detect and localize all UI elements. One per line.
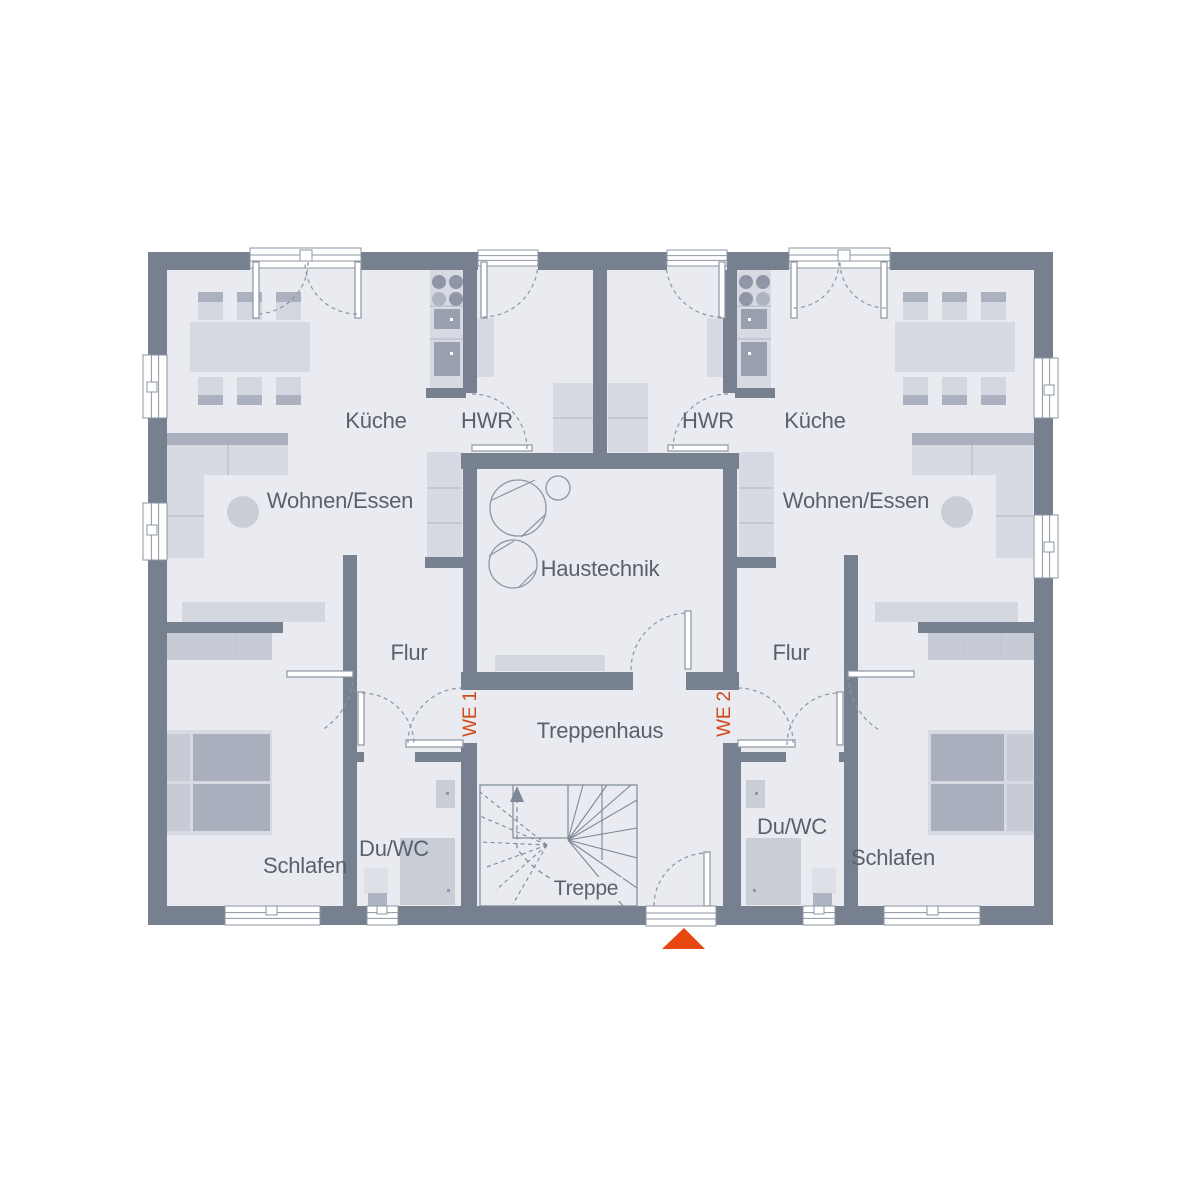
door-swing	[848, 674, 878, 729]
stair-tread	[568, 785, 607, 840]
door-swing	[408, 688, 463, 743]
door-swing	[362, 693, 414, 745]
hob-burner-circle	[432, 292, 446, 306]
door-leaf	[406, 740, 463, 747]
door-leaf	[704, 852, 710, 906]
label-schlafen-right: Schlafen	[851, 845, 935, 871]
window-frame	[646, 906, 716, 926]
window-duwc-right	[803, 906, 835, 925]
door-leaf	[358, 692, 364, 745]
hob-burner-circle	[756, 292, 770, 306]
window-handle	[266, 906, 277, 915]
hob-burner	[739, 275, 753, 289]
label-wohnen-right: Wohnen/Essen	[783, 488, 929, 514]
fixture-dot	[450, 318, 453, 321]
hob-burner-circle	[432, 275, 446, 289]
stair-tread-upper	[484, 845, 547, 868]
window-schlafen-right	[884, 906, 980, 925]
hob-burner-circle	[756, 275, 770, 289]
door-leaf	[837, 692, 843, 745]
label-treppe: Treppe	[550, 877, 623, 901]
door-leaf	[881, 262, 887, 318]
door-leaf	[355, 262, 361, 318]
window-right-upper	[1034, 358, 1058, 418]
hob-burner	[432, 292, 446, 306]
door-leaf	[481, 262, 487, 318]
plan-symbol-layer	[0, 0, 1200, 1200]
label-kueche-left: Küche	[345, 408, 406, 434]
boiler-tank-large-chord	[521, 514, 546, 537]
expansion-vessel	[546, 476, 570, 500]
window-duwc-left	[367, 906, 398, 925]
door-swing	[738, 688, 793, 743]
label-hwr-right: HWR	[682, 408, 734, 434]
label-haustechnik: Haustechnik	[541, 556, 660, 582]
boiler-tank-large-chord	[492, 480, 535, 500]
entrance-marker	[662, 928, 705, 949]
hob-burner	[449, 292, 463, 306]
window-handle	[147, 525, 157, 535]
door-swing	[654, 853, 707, 906]
window-handle	[377, 906, 387, 914]
label-kueche-right: Küche	[784, 408, 845, 434]
door-swing	[787, 693, 839, 745]
boiler-tank-large	[490, 480, 546, 537]
fixture-dot	[447, 889, 450, 892]
entrance-threshold	[646, 906, 716, 926]
coffee-table-right-circle	[941, 496, 973, 528]
window-schlafen-left	[225, 906, 320, 925]
hob-burner	[432, 275, 446, 289]
door-swing	[256, 262, 308, 314]
coffee-table-left	[227, 496, 259, 528]
window-handle	[147, 382, 157, 392]
window-handle	[814, 906, 824, 914]
hob-burner-circle	[739, 275, 753, 289]
door-leaf	[287, 671, 353, 677]
door-swing	[305, 262, 357, 314]
fixture-dot	[755, 792, 758, 795]
window-left-lower	[143, 503, 167, 560]
label-treppenhaus: Treppenhaus	[537, 718, 664, 744]
label-flur-right: Flur	[772, 640, 809, 666]
door-swing	[793, 262, 839, 308]
door-swing	[323, 674, 353, 729]
label-we1: WE 1	[460, 691, 482, 737]
label-schlafen-left: Schlafen	[263, 853, 347, 879]
hob-burner	[739, 292, 753, 306]
boiler-tank-medium-circle	[489, 540, 537, 588]
label-hwr-left: HWR	[461, 408, 513, 434]
expansion-vessel-circle	[546, 476, 570, 500]
label-duwc-left: Du/WC	[359, 836, 429, 862]
label-wohnen-left: Wohnen/Essen	[267, 488, 413, 514]
boiler-tank-medium	[489, 540, 537, 588]
hob-burner-circle	[739, 292, 753, 306]
door-leaf	[472, 445, 532, 451]
door-leaf	[791, 262, 797, 318]
hob-burner-circle	[449, 275, 463, 289]
door-leaf	[848, 671, 914, 677]
floorplan-canvas: KücheHWRHWRKücheWohnen/EssenWohnen/Essen…	[0, 0, 1200, 1200]
door-swing	[483, 262, 538, 317]
door-leaf	[253, 262, 259, 318]
door-swing	[666, 262, 721, 317]
stair-tread-upper	[513, 845, 547, 904]
floorplan: KücheHWRHWRKücheWohnen/EssenWohnen/Essen…	[0, 0, 1200, 1200]
fixture-dot	[748, 352, 751, 355]
boiler-tank-medium-chord	[519, 570, 536, 587]
door-leaf	[685, 611, 691, 669]
hob-burner-circle	[449, 292, 463, 306]
hwr-door-right-threshold	[667, 250, 727, 266]
window-handle	[300, 250, 312, 261]
door-swing	[631, 613, 688, 670]
door-leaf	[719, 262, 725, 318]
fixture-dot	[446, 792, 449, 795]
stair-tread-upper	[480, 842, 547, 845]
window-handle	[838, 250, 850, 261]
stair-tread	[568, 785, 631, 840]
fixture-dot	[753, 889, 756, 892]
stair-void	[513, 785, 568, 838]
window-right-lower	[1034, 515, 1058, 578]
stair-tread-upper	[496, 845, 547, 890]
window-handle	[927, 906, 938, 915]
fixture-dot	[450, 352, 453, 355]
label-flur-left: Flur	[390, 640, 427, 666]
hob-burner	[449, 275, 463, 289]
hob-burner	[756, 275, 770, 289]
coffee-table-right	[941, 496, 973, 528]
window-left-upper	[143, 355, 167, 418]
window-frame	[667, 250, 727, 266]
door-swing	[840, 262, 886, 308]
coffee-table-left-circle	[227, 496, 259, 528]
fixture-dot	[748, 318, 751, 321]
label-we2: WE 2	[714, 691, 736, 737]
hob-burner	[756, 292, 770, 306]
window-handle	[1044, 385, 1054, 395]
stair-tread	[568, 785, 583, 840]
label-duwc-right: Du/WC	[757, 814, 827, 840]
door-leaf	[668, 445, 728, 451]
window-handle	[1044, 542, 1054, 552]
